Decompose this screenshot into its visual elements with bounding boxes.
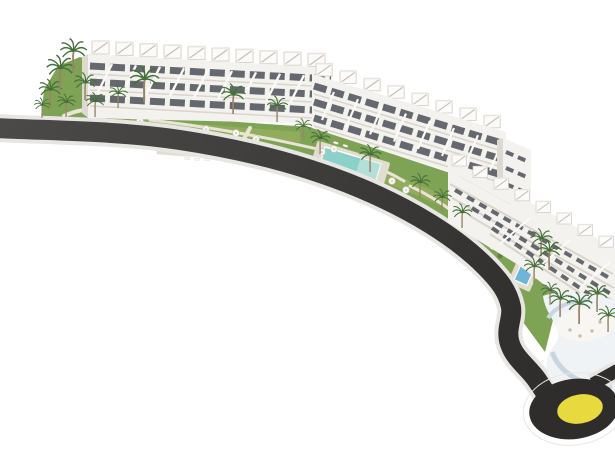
architectural-rendering (0, 0, 615, 454)
render-canvas (0, 0, 615, 454)
